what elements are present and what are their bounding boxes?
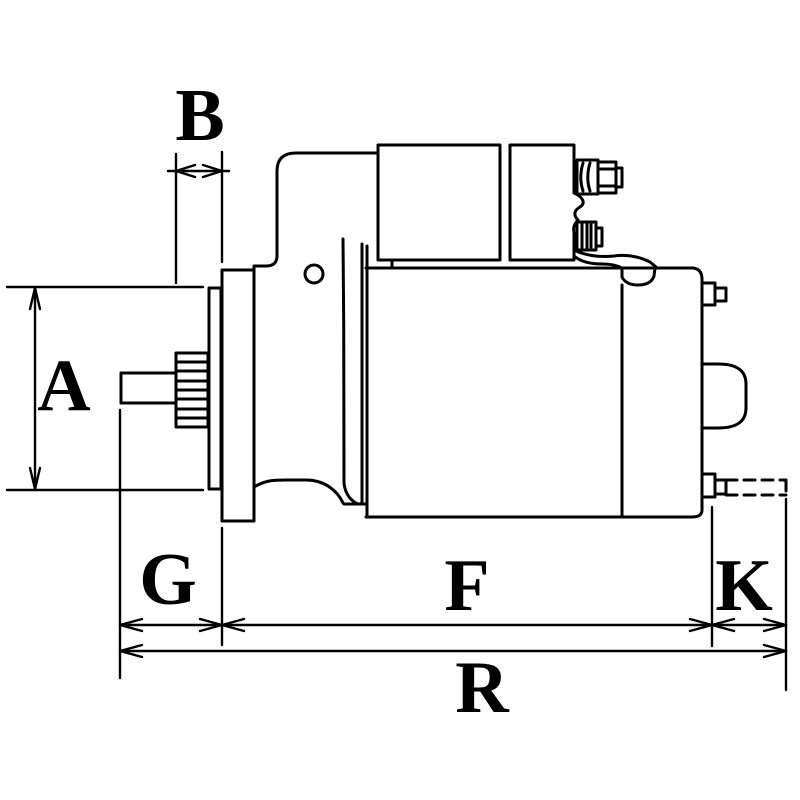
housing-joint-line-left [343, 239, 358, 504]
rear-bolt-top [702, 283, 726, 305]
rear-bearing-boss [702, 364, 746, 428]
solenoid-terminal-lower [577, 222, 602, 250]
drive-shaft [121, 373, 176, 403]
dimension-label-k: K [715, 545, 773, 627]
extension-lines [7, 152, 786, 690]
starter-motor-dimension-drawing: B A G F K R [0, 0, 800, 800]
dimension-label-f: F [444, 545, 489, 627]
field-strap [574, 251, 656, 268]
solenoid-cap [510, 145, 583, 260]
solenoid-body [378, 145, 500, 260]
hidden-stud-dashed [726, 480, 786, 495]
inspection-hole [305, 265, 323, 283]
terminal-boss [622, 268, 655, 285]
dimension-label-b: B [175, 75, 224, 157]
solenoid-terminal-upper [577, 160, 622, 194]
drive-end-plate [209, 288, 221, 489]
housing-upper-outline [254, 153, 378, 270]
motor-outline [121, 145, 786, 521]
mounting-flange [222, 270, 254, 521]
rear-bolt-bottom [702, 474, 726, 497]
technical-drawing-page: B A G F K R [0, 0, 800, 800]
motor-body [366, 246, 702, 517]
pinion-gear [176, 353, 208, 427]
dimension-line-R [120, 645, 786, 657]
dimension-label-r: R [455, 647, 510, 729]
dimension-label-g: G [139, 539, 197, 621]
dimension-annotations [7, 152, 786, 690]
dimension-label-a: A [37, 345, 90, 427]
